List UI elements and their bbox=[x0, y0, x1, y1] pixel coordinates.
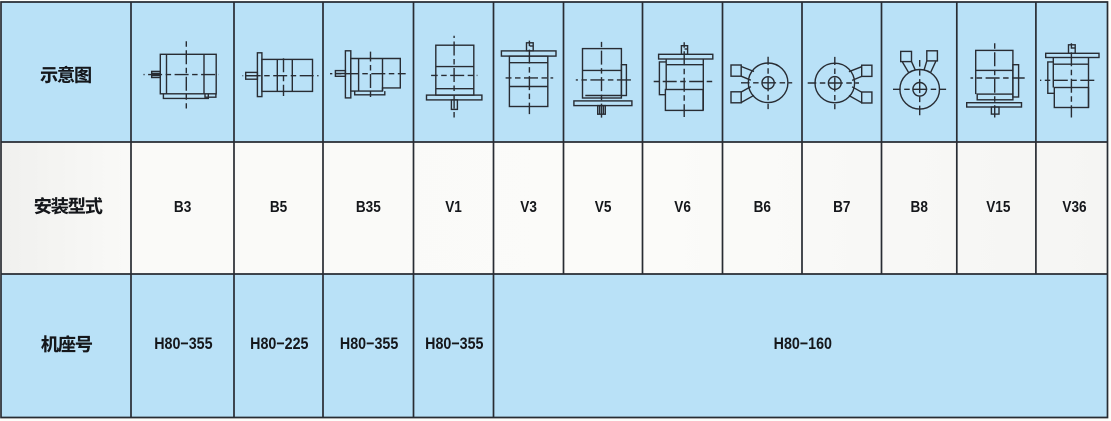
svg-text:V3: V3 bbox=[520, 199, 537, 216]
svg-text:B3: B3 bbox=[174, 199, 191, 216]
svg-text:H80−355: H80−355 bbox=[340, 335, 399, 353]
svg-text:B8: B8 bbox=[911, 199, 928, 216]
svg-text:H80−355: H80−355 bbox=[154, 335, 213, 353]
svg-text:V6: V6 bbox=[674, 199, 691, 216]
svg-text:B5: B5 bbox=[270, 199, 287, 216]
svg-text:H80−355: H80−355 bbox=[425, 335, 484, 353]
svg-text:H80−160: H80−160 bbox=[774, 335, 833, 353]
svg-text:B6: B6 bbox=[754, 199, 771, 216]
svg-text:V15: V15 bbox=[986, 199, 1010, 216]
svg-text:V36: V36 bbox=[1062, 199, 1086, 216]
svg-text:V1: V1 bbox=[445, 199, 462, 216]
svg-text:B35: B35 bbox=[356, 199, 381, 216]
svg-text:H80−225: H80−225 bbox=[250, 335, 309, 353]
svg-text:V5: V5 bbox=[595, 199, 612, 216]
svg-text:B7: B7 bbox=[833, 199, 850, 216]
